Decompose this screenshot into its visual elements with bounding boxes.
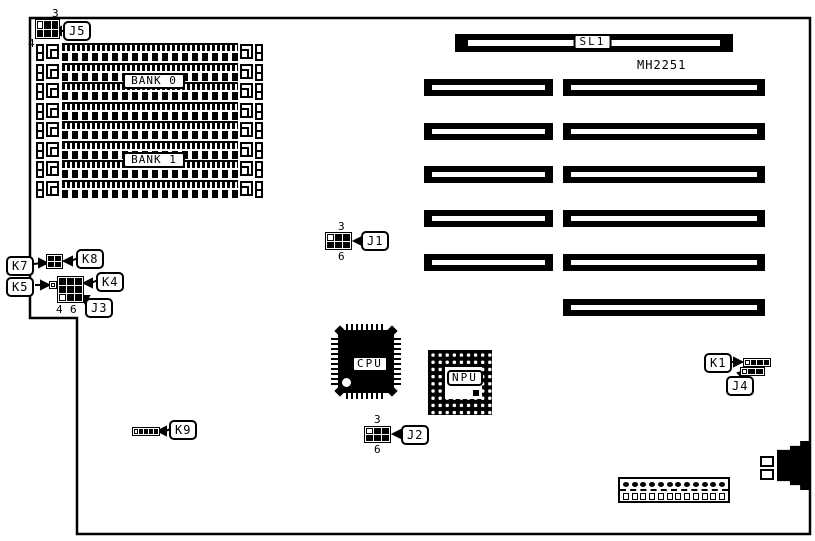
j3-pin4-number: 4 [56,304,64,315]
callout-k1: K1 [704,353,732,373]
expansion-slot [424,79,553,96]
callout-j1: J1 [361,231,389,251]
callout-k8: K8 [76,249,104,269]
npu-socket: NPU [428,350,492,415]
jumper-block-k7-k8 [46,254,63,269]
din-mount-pad [760,469,774,480]
npu-pin1-dot [473,390,479,396]
jumper-block-j1 [325,232,352,250]
pwr-pin [623,482,629,487]
simm-socket [36,43,268,62]
pwr-hole [719,493,725,500]
din-mount-pad [760,456,774,467]
header-k9 [132,427,160,436]
expansion-slot [563,79,765,96]
j5-pin3-number: 3 [52,8,60,19]
npu-inner-area: NPU [445,367,482,399]
pwr-hole [640,493,646,500]
j2-pin3-number: 3 [374,414,382,425]
cpu-pin1-dot [342,378,351,387]
expansion-slot [563,210,765,227]
jumper-block-j3 [57,276,84,303]
pwr-hole [667,493,673,500]
pwr-pin [632,482,638,487]
power-connector-holes [620,491,728,501]
pwr-pin [640,482,646,487]
jumper-block-j5 [35,19,60,39]
j1-pin3-number: 3 [338,221,346,232]
j2-pin6-number: 6 [374,444,382,455]
pwr-hole [649,493,655,500]
header-j4 [740,367,765,376]
pwr-pin [702,482,708,487]
pwr-hole [658,493,664,500]
bank0-label: BANK 0 [123,73,185,89]
pwr-pin [684,482,690,487]
jumper-block-j2 [364,426,391,443]
cpu-pins-bottom [346,392,386,399]
pwr-hole [675,493,681,500]
pwr-hole [632,493,638,500]
cpu-pins-right [394,338,401,385]
pwr-hole [623,493,629,500]
j5-pin4-number: 4 [28,38,36,49]
cpu-pins-left [331,338,338,385]
callout-k4: K4 [96,272,124,292]
expansion-slot [424,166,553,183]
j1-pin6-number: 6 [338,251,346,262]
j3-pin6-number: 6 [70,304,78,315]
callout-k9: K9 [169,420,197,440]
pwr-pin [710,482,716,487]
pwr-pin [649,482,655,487]
bank1-label: BANK 1 [123,152,185,168]
simm-socket [36,102,268,121]
pwr-hole [702,493,708,500]
cpu-label: CPU [352,356,388,372]
power-connector-pins [620,479,728,491]
expansion-slot [563,254,765,271]
expansion-slot [563,166,765,183]
npu-label: NPU [447,370,483,386]
pwr-pin [658,482,664,487]
pwr-hole [684,493,690,500]
callout-j5: J5 [63,21,91,41]
slot-sl1: SL1 [455,34,733,52]
pwr-pin [693,482,699,487]
motherboard-diagram: 3 4 J5 BANK 0 BANK 1 SL1 MH2251 3 6 J1 K… [0,0,815,541]
expansion-slot [563,299,765,316]
expansion-slot [563,123,765,140]
pwr-hole [710,493,716,500]
board-id-text: MH2251 [637,58,686,72]
pwr-hole [693,493,699,500]
callout-j3: J3 [85,298,113,318]
header-k1 [743,358,771,367]
expansion-slot [424,254,553,271]
sl1-label: SL1 [574,34,612,50]
expansion-slot [424,210,553,227]
callout-j4: J4 [726,376,754,396]
simm-socket [36,180,268,199]
pwr-pin [667,482,673,487]
simm-socket [36,121,268,140]
pwr-pin [675,482,681,487]
callout-k7: K7 [6,256,34,276]
callout-k5: K5 [6,277,34,297]
power-connector [618,477,730,503]
jumper-block-k5 [49,281,57,289]
pwr-pin [719,482,725,487]
callout-j2: J2 [401,425,429,445]
expansion-slot [424,123,553,140]
